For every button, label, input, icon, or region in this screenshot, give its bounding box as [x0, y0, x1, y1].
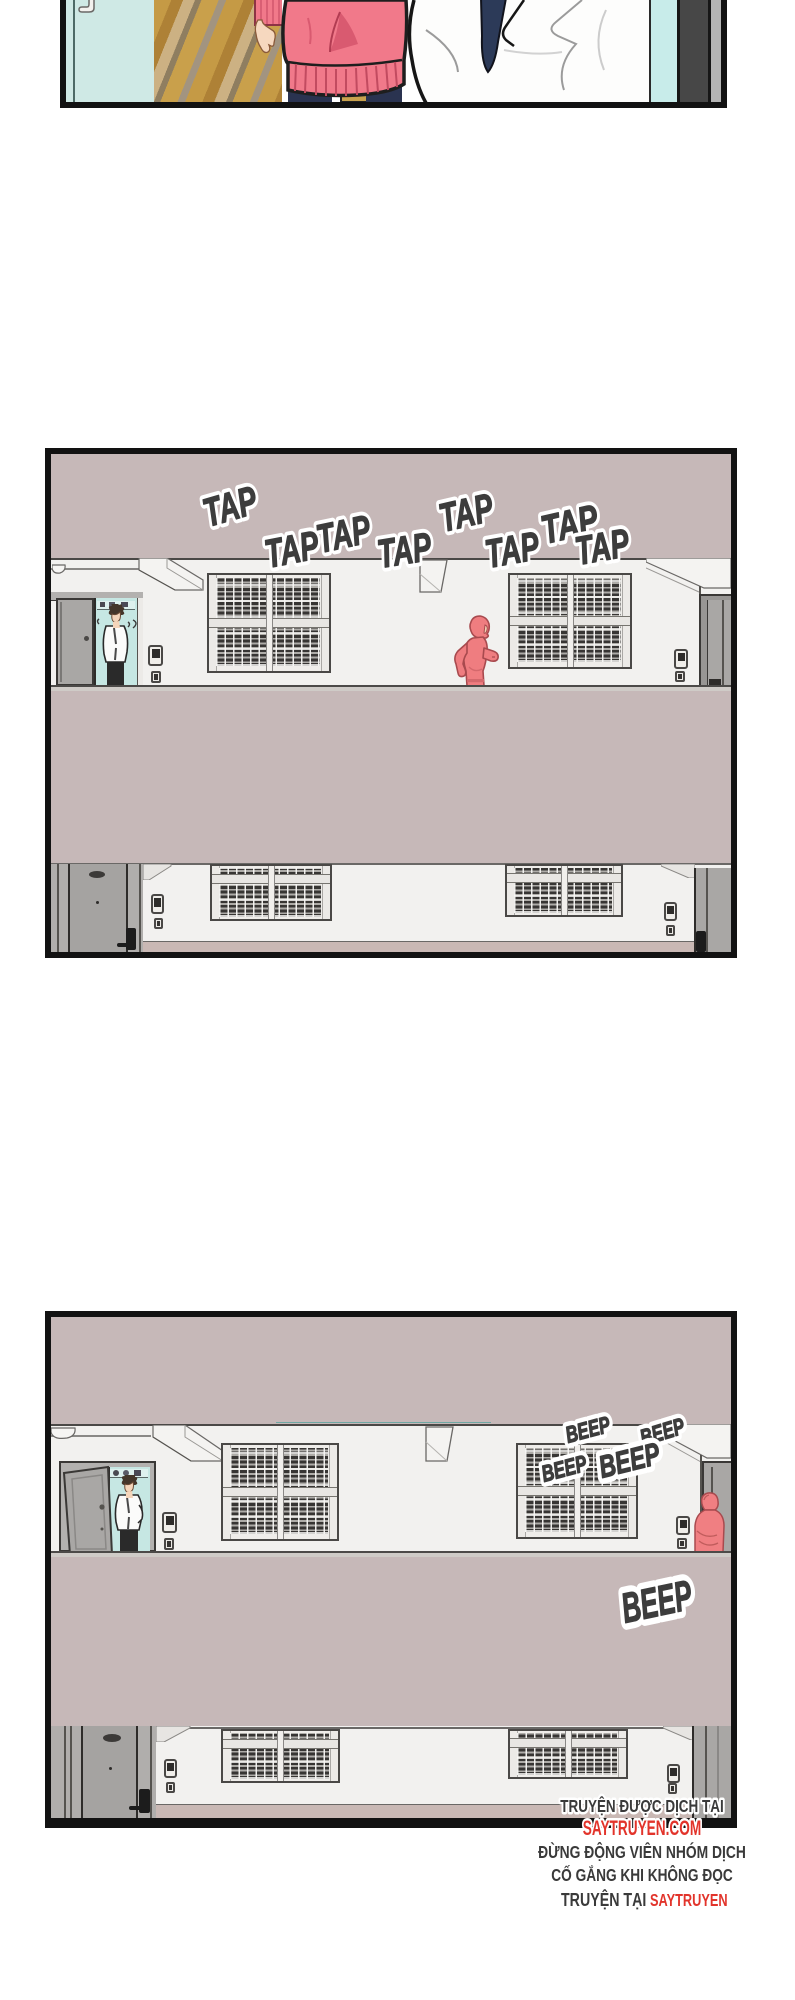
svg-text:CỐ GẮNG KHI KHÔNG ĐỌC: CỐ GẮNG KHI KHÔNG ĐỌC: [551, 1863, 733, 1886]
svg-text:TAP: TAP: [198, 479, 263, 536]
svg-text:TRUYỆN TẠI: TRUYỆN TẠI: [561, 1889, 646, 1910]
svg-text:SAYTRUYEN.COM: SAYTRUYEN.COM: [583, 1816, 702, 1840]
svg-text:TRUYỆN ĐƯỢC DỊCH TẠI: TRUYỆN ĐƯỢC DỊCH TẠI: [560, 1795, 724, 1816]
svg-text:TAP: TAP: [375, 525, 436, 577]
svg-text:ĐỪNG ĐỘNG VIÊN NHÓM DỊCH: ĐỪNG ĐỘNG VIÊN NHÓM DỊCH: [538, 1841, 746, 1862]
svg-text:BEEP: BEEP: [595, 1435, 664, 1484]
svg-text:SAYTRUYEN: SAYTRUYEN: [650, 1891, 728, 1911]
svg-text:TAP: TAP: [572, 521, 634, 574]
svg-text:BEEP: BEEP: [563, 1412, 614, 1448]
svg-text:TAP: TAP: [313, 508, 376, 562]
svg-text:TAP: TAP: [261, 523, 323, 577]
svg-text:BEEP: BEEP: [617, 1572, 697, 1633]
svg-text:BEEP: BEEP: [539, 1451, 590, 1487]
svg-text:TAP: TAP: [482, 524, 544, 577]
